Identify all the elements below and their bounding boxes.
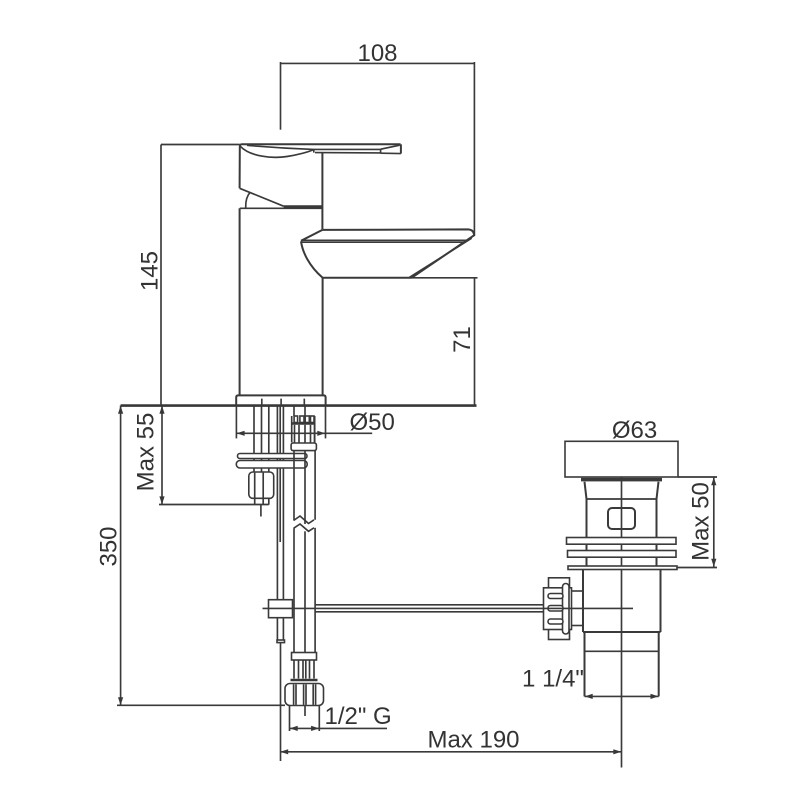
svg-text:Ø50: Ø50	[350, 409, 395, 436]
svg-text:108: 108	[357, 40, 397, 67]
svg-text:Max 50: Max 50	[688, 482, 715, 561]
svg-text:1 1/4": 1 1/4"	[522, 666, 584, 693]
svg-text:1/2" G: 1/2" G	[325, 703, 392, 730]
svg-text:145: 145	[137, 251, 164, 291]
svg-text:Max 190: Max 190	[427, 727, 519, 754]
svg-text:Ø63: Ø63	[612, 417, 657, 444]
svg-text:Max 55: Max 55	[133, 413, 160, 492]
svg-text:350: 350	[95, 526, 122, 566]
svg-text:71: 71	[449, 326, 476, 353]
